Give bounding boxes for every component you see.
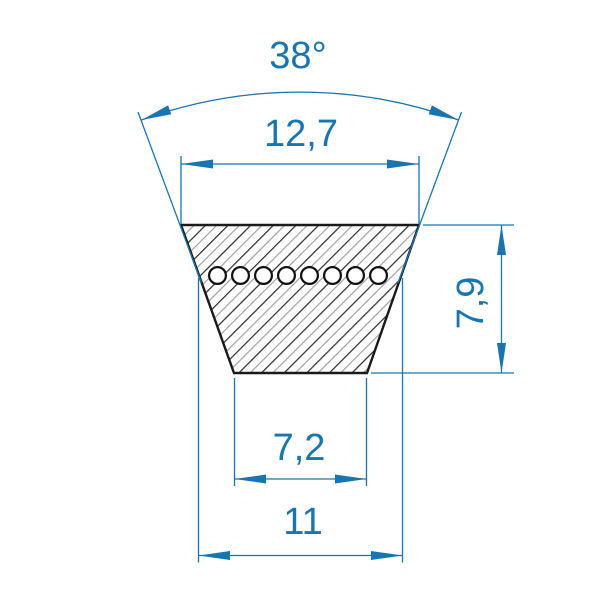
arrowhead-right-icon xyxy=(371,551,403,560)
top-width-label: 12,7 xyxy=(264,113,338,155)
cord-circle xyxy=(301,267,318,284)
cord-circle xyxy=(255,267,272,284)
arrowhead-left-icon xyxy=(199,551,231,560)
arrowhead-up-icon xyxy=(497,225,506,255)
cord-circle xyxy=(278,267,295,284)
belt-trapezoid xyxy=(181,225,419,373)
arrowhead-right-icon xyxy=(387,160,419,169)
dimension-bottom-width: 7,2 xyxy=(235,378,367,486)
height-label: 7,9 xyxy=(450,277,492,330)
angle-flank-line-right xyxy=(398,112,462,283)
cord-circle xyxy=(232,267,249,284)
angle-flank-line-left xyxy=(138,112,202,283)
drawing-canvas: 38° 12,7 7,9 7,2 11 xyxy=(0,0,600,600)
cord-circle xyxy=(209,267,226,284)
v-belt-cross-section-drawing: 38° 12,7 7,9 7,2 11 xyxy=(0,0,600,600)
arrowhead-left-icon xyxy=(142,105,172,120)
arrowhead-left-icon xyxy=(235,475,267,484)
cord-circle xyxy=(347,267,364,284)
cord-circle xyxy=(324,267,341,284)
cord-circle xyxy=(370,267,387,284)
angle-label: 38° xyxy=(269,35,326,77)
datum-width-label: 11 xyxy=(283,501,322,543)
bottom-width-label: 7,2 xyxy=(273,427,326,469)
arrowhead-left-icon xyxy=(181,160,213,169)
arrowhead-right-icon xyxy=(335,475,367,484)
dimension-top-width: 12,7 xyxy=(181,113,419,224)
belt-profile xyxy=(181,225,419,373)
arrowhead-right-icon xyxy=(429,105,459,120)
arrowhead-down-icon xyxy=(497,343,506,373)
